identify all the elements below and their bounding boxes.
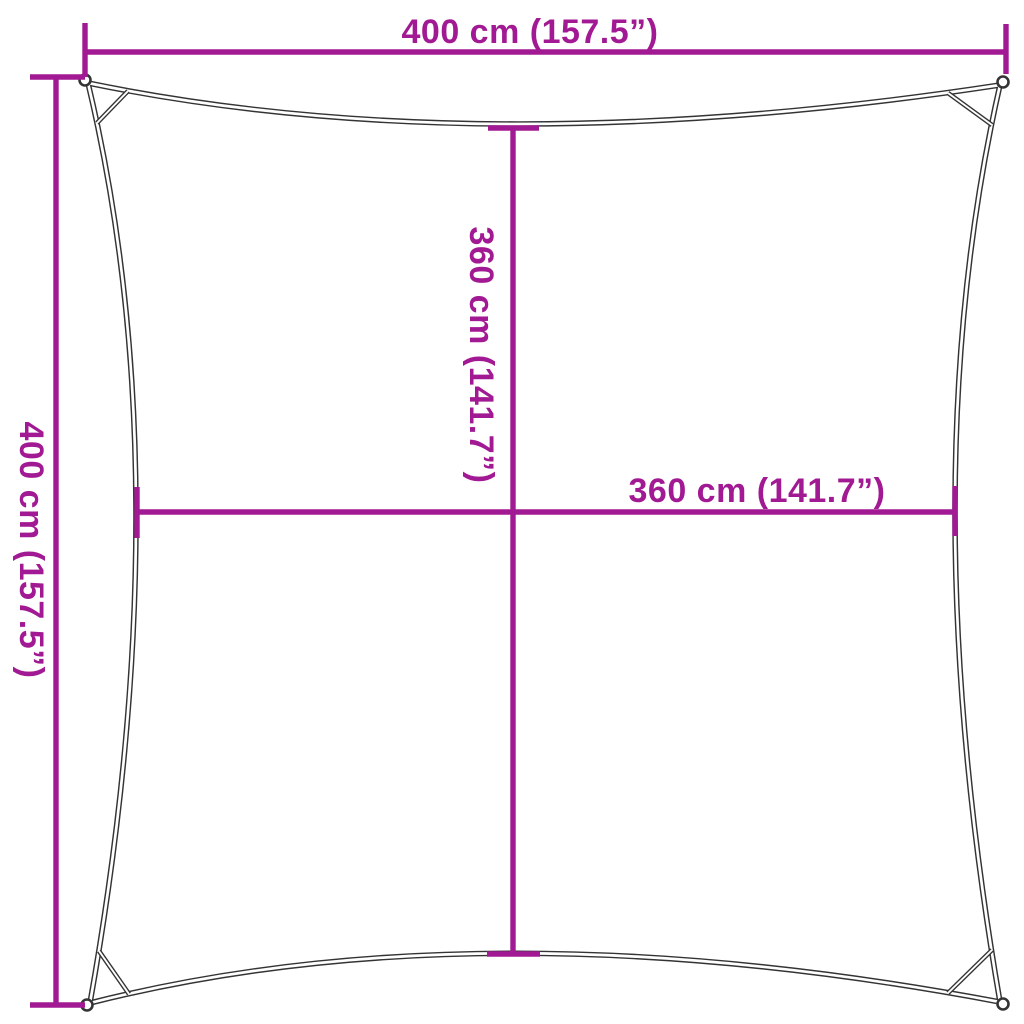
dim-top-label: 400 cm (157.5”): [402, 13, 659, 51]
dimension-left: 400 cm (157.5”): [12, 77, 85, 1005]
dim-left-label: 400 cm (157.5”): [12, 422, 50, 679]
shade-sail-dimension-diagram: 400 cm (157.5”) 400 cm (157.5”) 360 cm (…: [0, 0, 1024, 1024]
corner-ring-bottom-right: [998, 999, 1009, 1010]
dimension-top: 400 cm (157.5”): [85, 13, 1006, 77]
diagram-canvas: 400 cm (157.5”) 400 cm (157.5”) 360 cm (…: [0, 0, 1024, 1024]
corner-ring-top-right: [998, 77, 1009, 88]
sail-fabric: [88, 83, 1000, 1003]
sail-shape: [80, 75, 1009, 1011]
dim-inner-horizontal-label: 360 cm (141.7”): [629, 472, 886, 510]
dim-inner-vertical-label: 360 cm (141.7”): [462, 227, 500, 484]
